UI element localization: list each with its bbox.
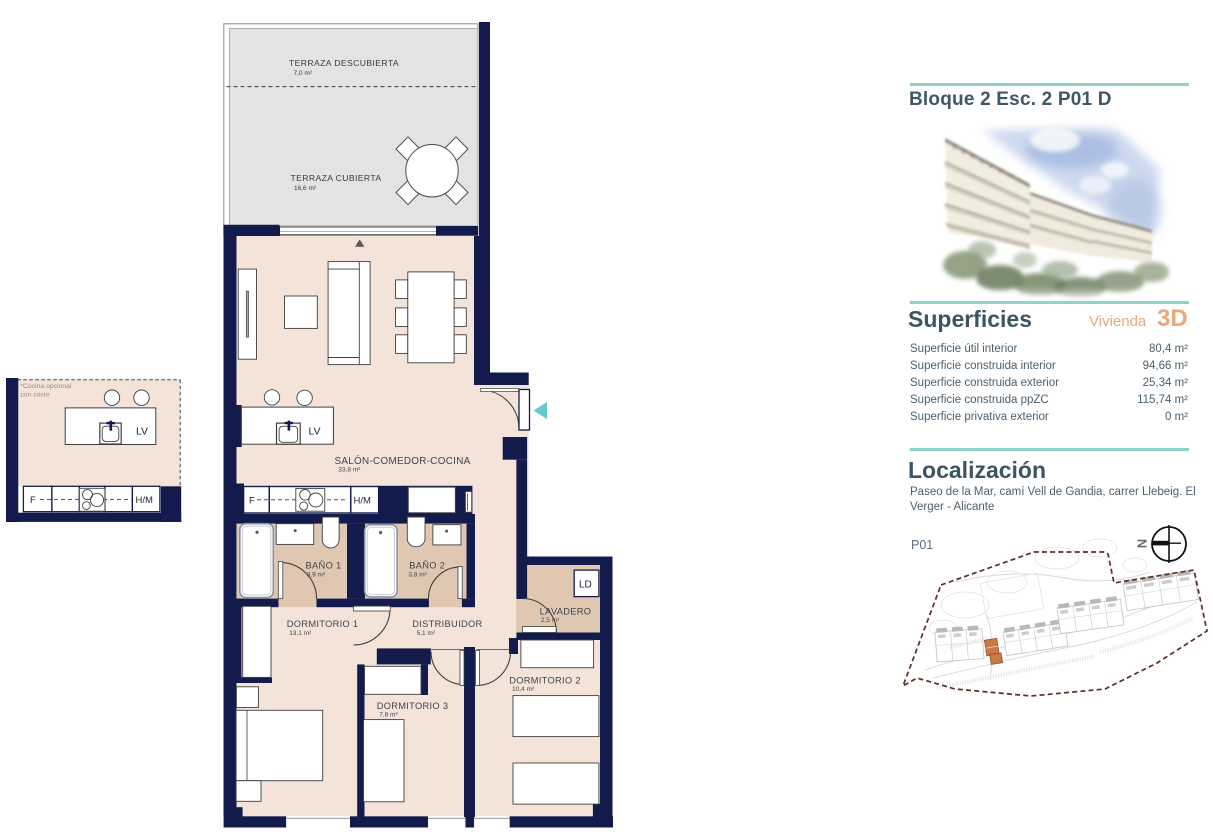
svg-text:16,6 m²: 16,6 m² xyxy=(294,185,317,192)
svg-text:BAÑO 2: BAÑO 2 xyxy=(409,561,445,571)
svg-text:LV: LV xyxy=(309,426,321,438)
svg-text:SALÓN-COMEDOR-COCINA: SALÓN-COMEDOR-COCINA xyxy=(334,456,470,467)
svg-text:F: F xyxy=(249,496,255,507)
svg-text:*Cocina opcional: *Cocina opcional xyxy=(20,383,71,390)
svg-text:3,8 m²: 3,8 m² xyxy=(408,572,427,579)
svg-text:10,4 m²: 10,4 m² xyxy=(512,686,535,693)
svg-text:con coste: con coste xyxy=(20,392,49,399)
svg-text:LV: LV xyxy=(136,426,148,438)
svg-text:BAÑO 1: BAÑO 1 xyxy=(306,561,342,571)
svg-text:DORMITORIO 3: DORMITORIO 3 xyxy=(377,701,449,711)
svg-text:DORMITORIO 2: DORMITORIO 2 xyxy=(509,676,581,686)
svg-text:7,8 m²: 7,8 m² xyxy=(379,712,398,719)
svg-text:H/M: H/M xyxy=(136,495,154,506)
svg-text:2,5 m²: 2,5 m² xyxy=(541,617,560,624)
svg-text:DORMITORIO 1: DORMITORIO 1 xyxy=(287,619,359,629)
svg-text:TERRAZA CUBIERTA: TERRAZA CUBIERTA xyxy=(290,173,381,183)
svg-text:13,1 m²: 13,1 m² xyxy=(289,630,312,637)
svg-text:F: F xyxy=(30,495,36,506)
svg-text:TERRAZA DESCUBIERTA: TERRAZA DESCUBIERTA xyxy=(289,58,399,68)
svg-text:5,1 m²: 5,1 m² xyxy=(417,630,436,637)
svg-text:DISTRIBUIDOR: DISTRIBUIDOR xyxy=(412,619,482,629)
svg-text:7,0 m²: 7,0 m² xyxy=(294,70,313,77)
svg-text:H/M: H/M xyxy=(354,496,372,507)
svg-text:3,9 m²: 3,9 m² xyxy=(307,572,326,579)
svg-text:33,8 m²: 33,8 m² xyxy=(338,467,361,474)
svg-text:LAVADERO: LAVADERO xyxy=(540,607,592,617)
svg-text:LD: LD xyxy=(579,580,592,591)
svg-text:N: N xyxy=(1134,539,1149,548)
